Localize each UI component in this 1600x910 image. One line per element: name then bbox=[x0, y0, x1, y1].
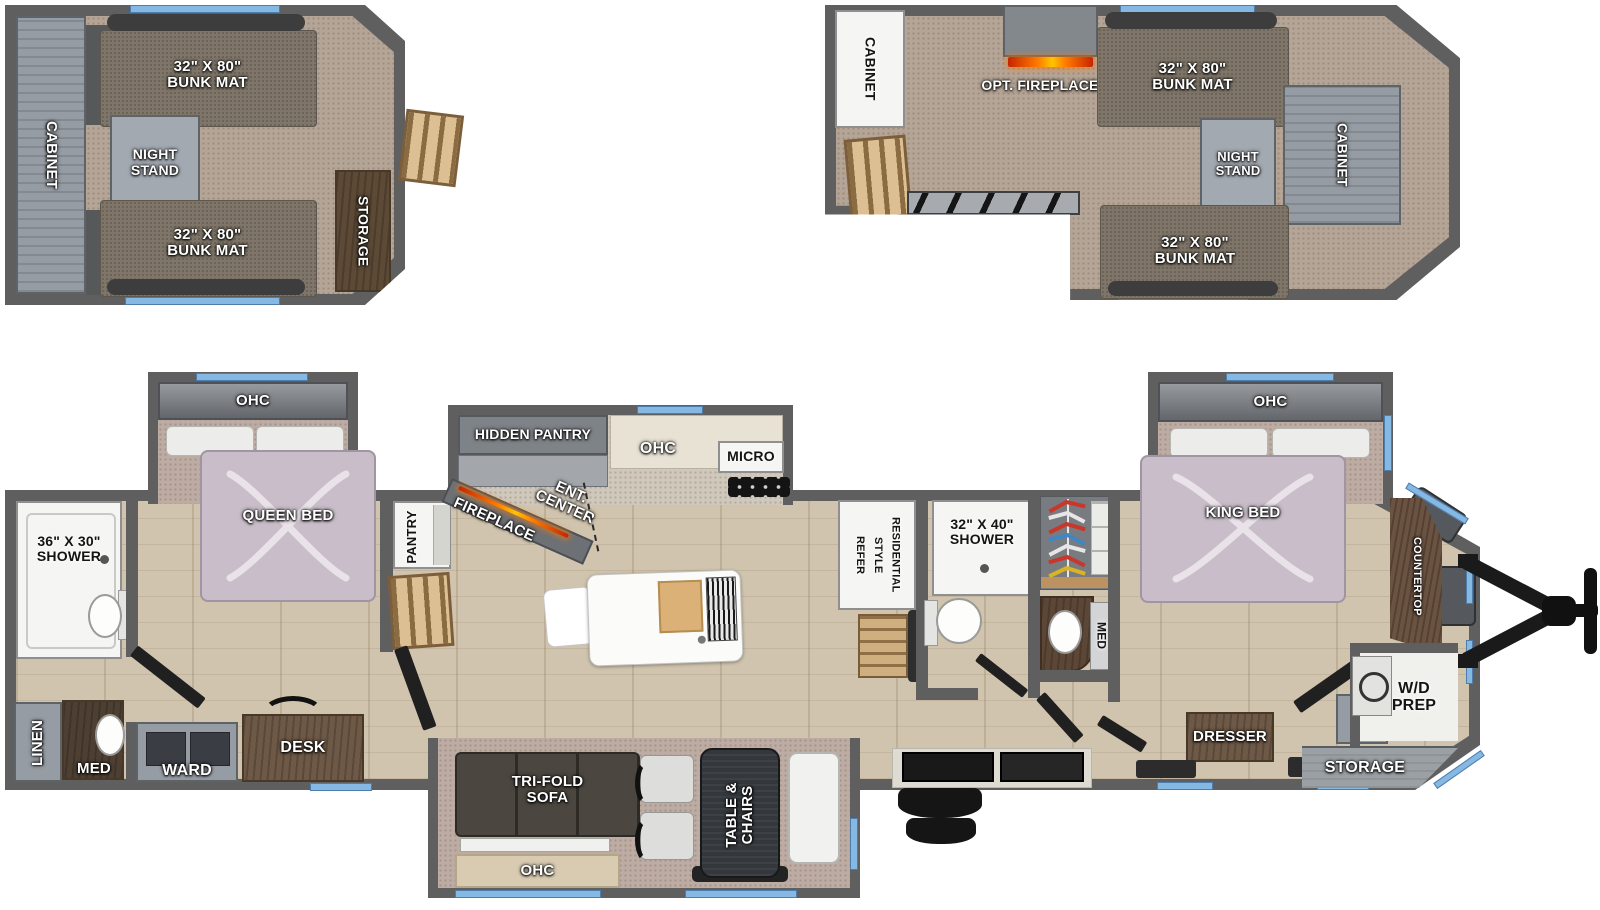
dinette-table-label: TABLE & CHAIRS bbox=[721, 755, 759, 875]
rear-loft-cabinet-label: CABINET bbox=[18, 18, 84, 292]
floorplan-canvas: CABINET 32" X 80" BUNK MAT NIGHT STAND 3… bbox=[0, 0, 1600, 910]
queen-ohc: OHC bbox=[158, 382, 348, 420]
rear-loft-window-top bbox=[130, 5, 280, 13]
front-loft-cabinet-left-label: CABINET bbox=[837, 12, 903, 126]
front-loft-night-stand-label: NIGHT STAND bbox=[1202, 120, 1274, 208]
refer-label: RESIDENTIAL STYLE REFER bbox=[840, 502, 914, 608]
sofa-tray bbox=[460, 838, 610, 852]
door-mat bbox=[1136, 760, 1196, 778]
washer-icon bbox=[1352, 656, 1392, 716]
rear-med-label: MED bbox=[64, 760, 124, 778]
wall-bath-bedroom-upper bbox=[126, 492, 138, 657]
kitchen-island bbox=[586, 569, 743, 666]
pantry-side bbox=[433, 505, 450, 565]
dinette-chair-2 bbox=[640, 812, 694, 860]
tri-fold-sofa-label: TRI-FOLD SOFA bbox=[457, 768, 638, 812]
clothes-hangers-icon bbox=[1043, 499, 1093, 579]
queen-bed: QUEEN BED bbox=[200, 450, 376, 602]
mid-toilet-icon bbox=[936, 598, 982, 644]
rear-sink-icon bbox=[95, 714, 125, 756]
queen-ohc-label: OHC bbox=[160, 384, 346, 418]
queen-bed-label: QUEEN BED bbox=[202, 506, 374, 526]
loft-ladder-icon bbox=[387, 572, 454, 650]
front-loft-bunk-bottom-label: 32" X 80" BUNK MAT bbox=[1105, 231, 1285, 271]
loft-stairs-icon bbox=[858, 614, 908, 678]
tri-fold-sofa: TRI-FOLD SOFA bbox=[455, 752, 640, 837]
wd-wall-top bbox=[1350, 643, 1458, 653]
shower-drain-icon bbox=[100, 555, 109, 564]
king-bed: KING BED bbox=[1140, 455, 1346, 603]
rear-loft-night-stand: NIGHT STAND bbox=[110, 115, 200, 210]
rear-loft-storage: STORAGE bbox=[335, 170, 391, 292]
ward-cabinet: WARD bbox=[136, 722, 238, 782]
pantry: PANTRY bbox=[393, 501, 451, 569]
rear-loft-cabinet: CABINET bbox=[16, 16, 86, 294]
front-loft-cabinet-right-label: CABINET bbox=[1285, 87, 1399, 223]
mid-shower-label: 32" X 40" SHOWER bbox=[934, 512, 1030, 552]
rear-loft: CABINET 32" X 80" BUNK MAT NIGHT STAND 3… bbox=[5, 5, 405, 305]
chair-back-icon bbox=[635, 760, 659, 806]
king-ohc: OHC bbox=[1158, 382, 1383, 422]
king-pillow-left bbox=[1170, 428, 1268, 458]
kitchen-slide-window bbox=[637, 406, 703, 414]
wall-bath-bottom bbox=[916, 688, 978, 700]
linen-cabinet: LINEN bbox=[14, 702, 62, 782]
rear-loft-storage-label: STORAGE bbox=[337, 172, 389, 290]
dinette-chair-1 bbox=[640, 755, 694, 803]
front-loft-night-stand: NIGHT STAND bbox=[1200, 118, 1276, 210]
washer-drum-icon bbox=[1359, 672, 1389, 702]
shower-drain-icon bbox=[980, 564, 989, 573]
mid-shower: 32" X 40" SHOWER bbox=[932, 500, 1032, 596]
entry-mat bbox=[902, 752, 994, 782]
chair-back-icon bbox=[635, 817, 659, 863]
wall-bath-left bbox=[916, 492, 928, 698]
bedroom-window-bottom bbox=[310, 783, 372, 791]
king-bed-label: KING BED bbox=[1142, 503, 1344, 523]
king-slide-window-side bbox=[1384, 415, 1392, 471]
front-loft-stair-treads-icon bbox=[907, 191, 1080, 215]
faucet-icon bbox=[698, 636, 706, 644]
wall-closet-bottom bbox=[1028, 670, 1120, 682]
kitchen-slide: HIDDEN PANTRY OHC MICRO bbox=[448, 405, 793, 505]
sofa-slide-window-left bbox=[455, 890, 601, 898]
micro-label: MICRO bbox=[720, 443, 782, 471]
front-loft: CABINET OPT. FIREPLACE 32" X 80" BUNK MA… bbox=[825, 5, 1460, 300]
king-ohc-label: OHC bbox=[1160, 384, 1381, 420]
front-loft-bunk-bottom-bolster bbox=[1108, 281, 1278, 296]
front-sink-icon bbox=[1048, 610, 1082, 654]
linen-label: LINEN bbox=[29, 705, 47, 781]
ward-label: WARD bbox=[138, 760, 236, 782]
queen-slide-window bbox=[196, 373, 308, 381]
sofa-slide-window-side bbox=[850, 818, 858, 870]
cutting-board-icon bbox=[658, 580, 704, 634]
rear-loft-bunk-top-label: 32" X 80" BUNK MAT bbox=[100, 55, 315, 95]
hidden-pantry-label: HIDDEN PANTRY bbox=[460, 417, 606, 453]
entry-step-icon bbox=[906, 818, 976, 844]
front-loft-cabinet-right: CABINET bbox=[1283, 85, 1401, 225]
micro: MICRO bbox=[718, 441, 784, 473]
entry-step-icon bbox=[898, 788, 982, 818]
front-loft-fireplace-unit bbox=[1003, 5, 1098, 57]
pantry-label: PANTRY bbox=[404, 502, 420, 572]
wall-bath-right bbox=[1028, 492, 1040, 698]
front-loft-bunk-top-bolster bbox=[1105, 12, 1277, 29]
hitch-icon bbox=[1458, 542, 1600, 682]
dresser: DRESSER bbox=[1186, 712, 1274, 762]
rear-toilet-icon bbox=[88, 594, 122, 638]
dinette-bench bbox=[788, 752, 840, 864]
front-loft-bunk-top-label: 32" X 80" BUNK MAT bbox=[1100, 57, 1285, 97]
kitchen-ohc-label: OHC bbox=[618, 439, 698, 459]
sofa-ohc: OHC bbox=[455, 854, 620, 888]
rear-loft-night-stand-label: NIGHT STAND bbox=[112, 117, 198, 208]
desk-label: DESK bbox=[244, 716, 362, 780]
sink-grate-icon bbox=[706, 577, 738, 642]
front-loft-cabinet-left: CABINET bbox=[835, 10, 905, 128]
rear-loft-bunk-top-bolster bbox=[107, 14, 305, 31]
king-slide-window-top bbox=[1226, 373, 1334, 381]
king-pillow-right bbox=[1272, 428, 1370, 458]
sofa-slide: TRI-FOLD SOFA OHC TABLE & CHAIRS bbox=[428, 738, 860, 898]
front-storage-label: STORAGE bbox=[1310, 748, 1420, 788]
front-loft-fireplace-flame-icon bbox=[1008, 57, 1093, 67]
entry-mat bbox=[1000, 752, 1084, 782]
sofa-slide-window-right bbox=[685, 890, 797, 898]
quilt-pattern-icon bbox=[1142, 457, 1344, 601]
king-window-bottom-left bbox=[1157, 782, 1213, 790]
cooktop-icon bbox=[728, 477, 790, 497]
front-closet bbox=[1040, 496, 1112, 590]
dinette-table: TABLE & CHAIRS bbox=[700, 748, 780, 878]
dresser-label: DRESSER bbox=[1188, 714, 1272, 760]
refrigerator: RESIDENTIAL STYLE REFER bbox=[838, 500, 916, 610]
quilt-pattern-icon bbox=[202, 452, 374, 600]
desk: DESK bbox=[242, 714, 364, 782]
hidden-pantry: HIDDEN PANTRY bbox=[458, 415, 608, 455]
rear-loft-bunk-bottom-label: 32" X 80" BUNK MAT bbox=[100, 223, 315, 263]
rear-loft-window-bottom bbox=[125, 297, 280, 305]
rear-loft-bunk-bottom-bolster bbox=[107, 279, 305, 295]
closet-shelves bbox=[1091, 501, 1109, 575]
rear-loft-ladder-icon bbox=[398, 109, 464, 188]
sofa-ohc-label: OHC bbox=[457, 856, 618, 886]
front-loft-stair-railing-icon bbox=[844, 134, 913, 221]
